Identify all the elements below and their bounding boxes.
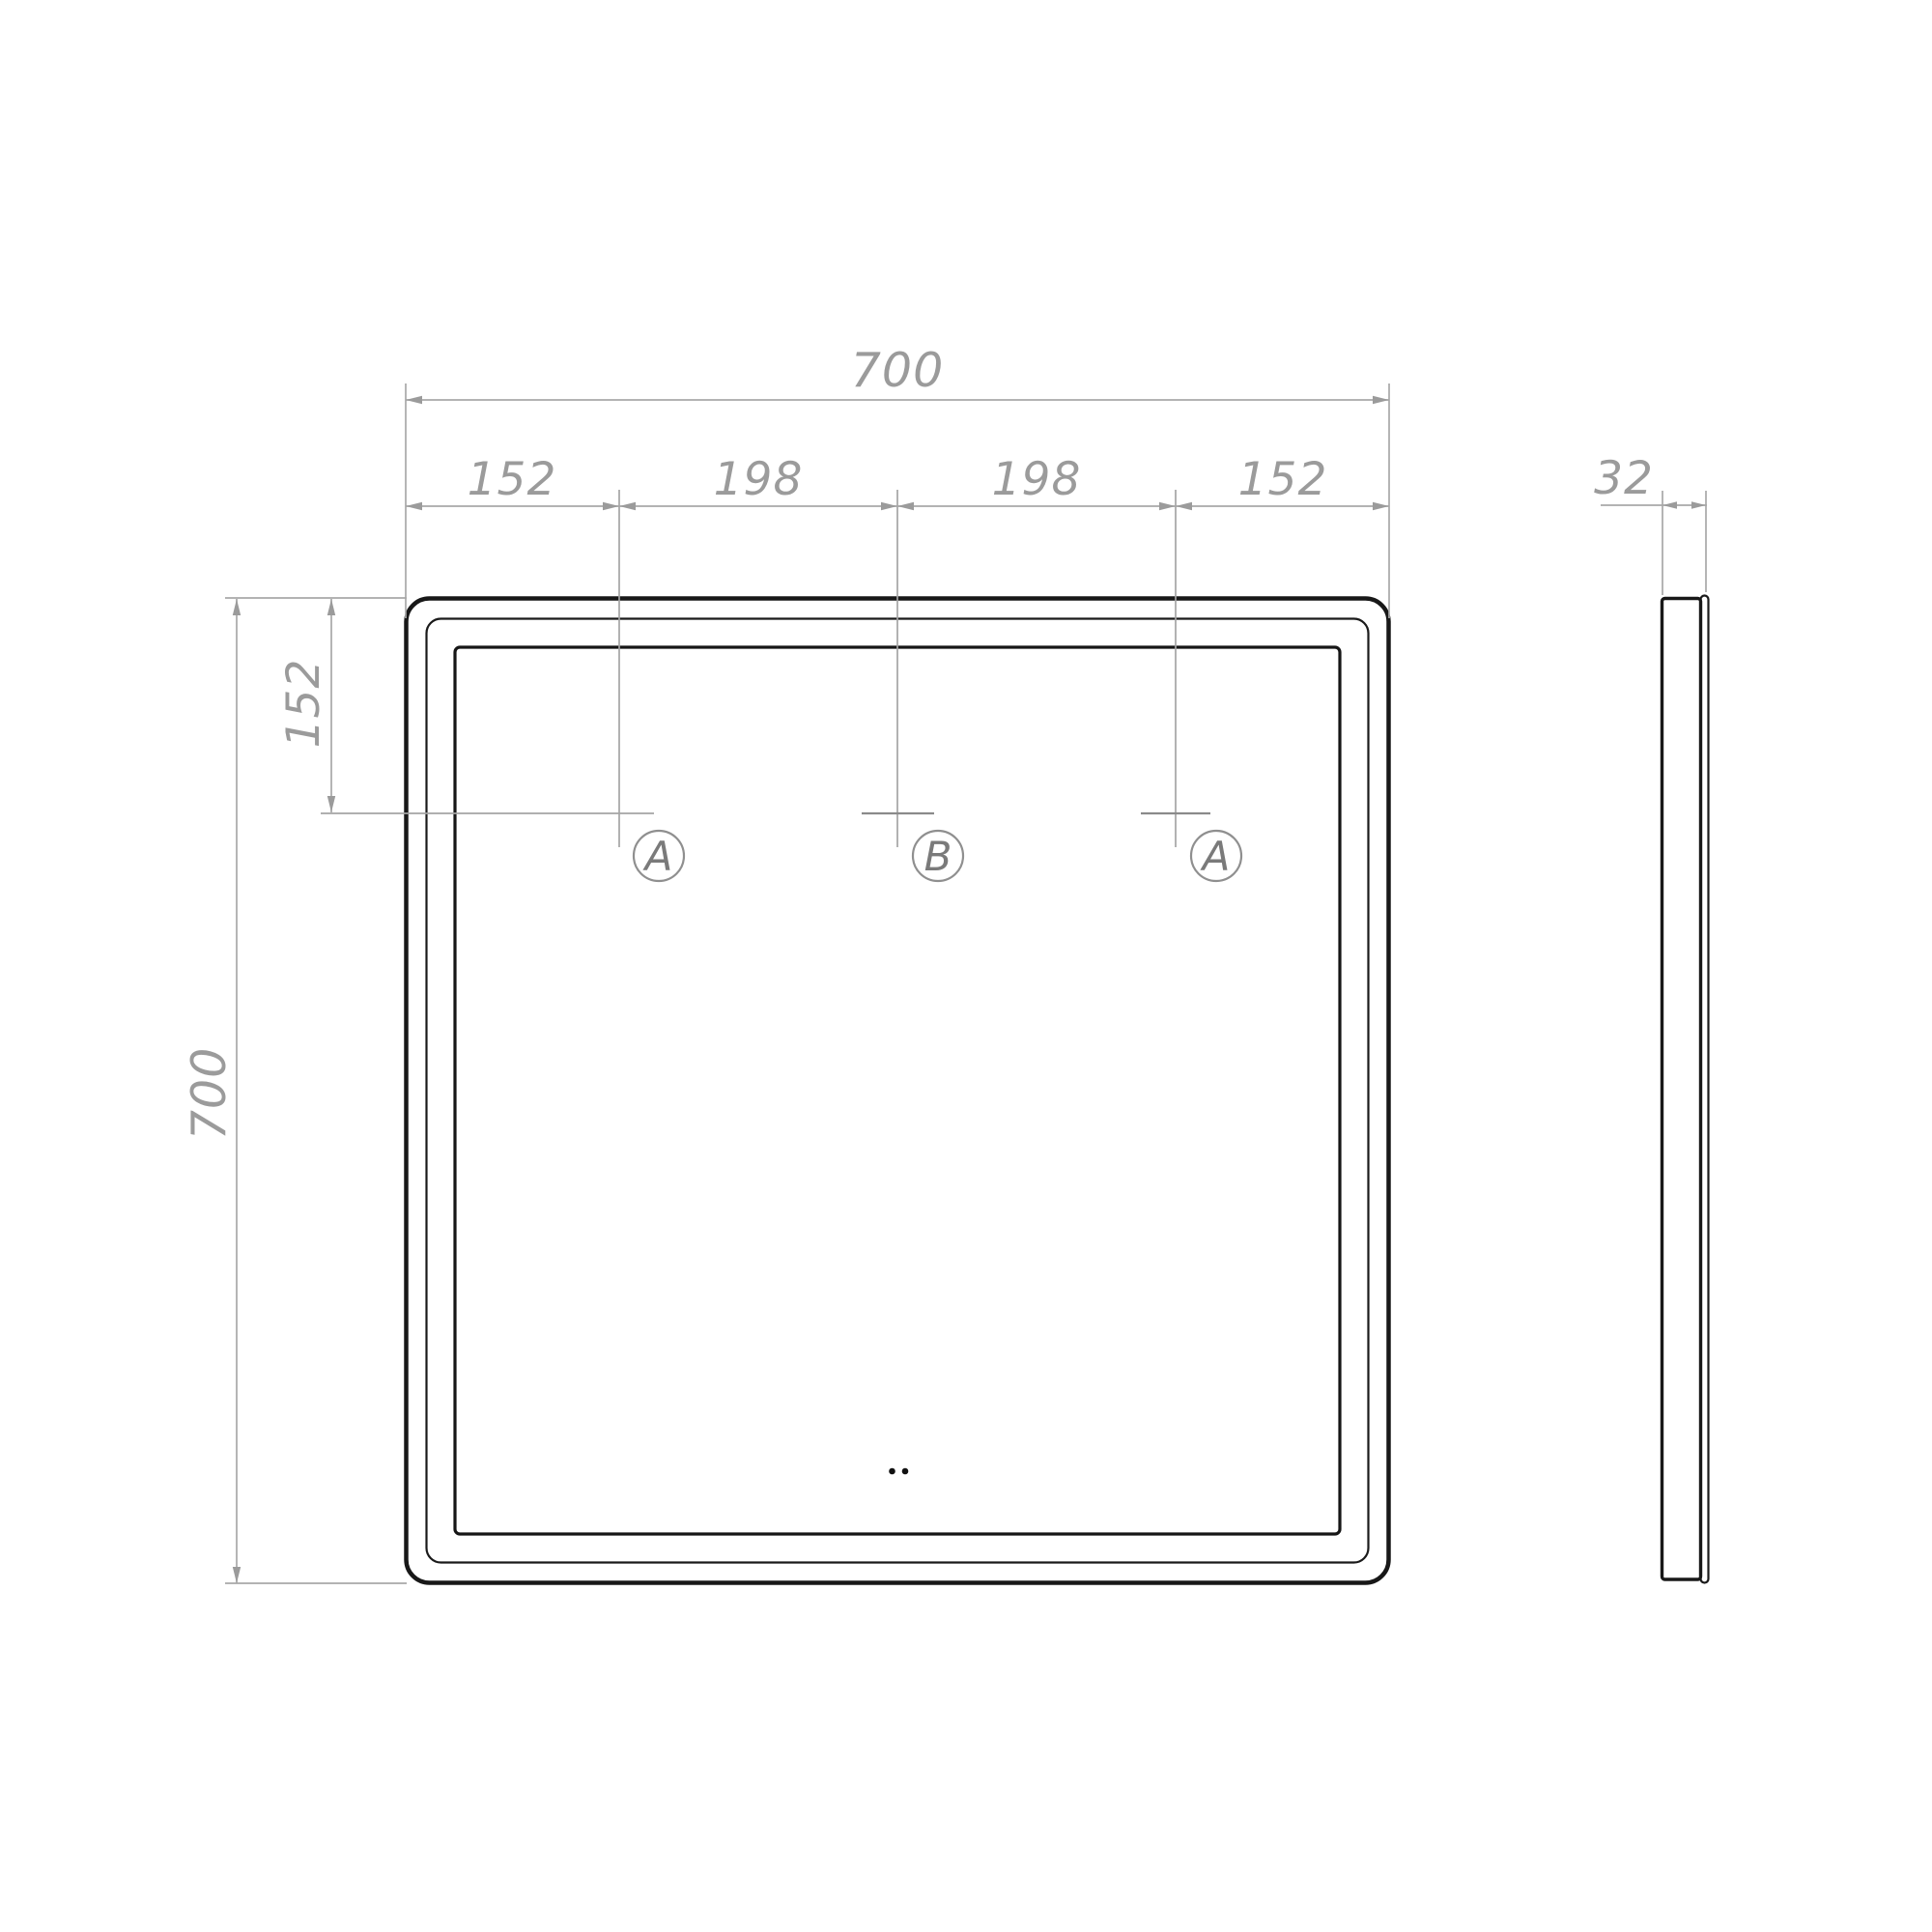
arrowhead	[233, 599, 241, 615]
dimension-label-overall-height: 700	[182, 1047, 237, 1141]
arrowhead	[1373, 502, 1389, 510]
mount-marker-label-b: B	[924, 833, 952, 880]
arrowhead	[619, 502, 636, 510]
segment-label-3: 152	[1238, 453, 1328, 506]
dim-thickness-group	[1601, 491, 1707, 595]
arrowhead	[1373, 396, 1389, 404]
touch-sensor-dot	[889, 1468, 895, 1475]
segment-label-0: 152	[468, 453, 557, 506]
segment-label-1: 198	[714, 453, 804, 506]
technical-drawing-page: A B A 700 152 198 198 152 700	[0, 0, 1932, 1932]
segment-label-2: 198	[992, 453, 1082, 506]
arrowhead	[1176, 502, 1192, 510]
arrowhead	[406, 502, 422, 510]
mount-marker-label-a1: A	[642, 833, 673, 880]
arrowhead	[897, 502, 914, 510]
dimension-label-top-offset: 152	[277, 659, 330, 749]
arrowhead	[327, 599, 335, 615]
arrowhead	[406, 396, 422, 404]
arrowhead	[1662, 501, 1677, 509]
arrowhead	[1159, 502, 1176, 510]
dimension-label-overall-width: 700	[851, 343, 945, 398]
side-frame-profile	[1662, 599, 1701, 1580]
arrowhead	[881, 502, 897, 510]
arrowhead	[327, 796, 335, 812]
dimension-label-thickness: 32	[1594, 452, 1654, 505]
side-view-group	[1662, 596, 1709, 1583]
touch-sensor-dot	[902, 1468, 909, 1475]
arrowhead	[603, 502, 619, 510]
arrowhead	[233, 1567, 241, 1583]
arrowhead	[1691, 501, 1706, 509]
mount-marker-label-a2: A	[1200, 833, 1231, 880]
technical-drawing-canvas: A B A 700 152 198 198 152 700	[0, 0, 1932, 1932]
